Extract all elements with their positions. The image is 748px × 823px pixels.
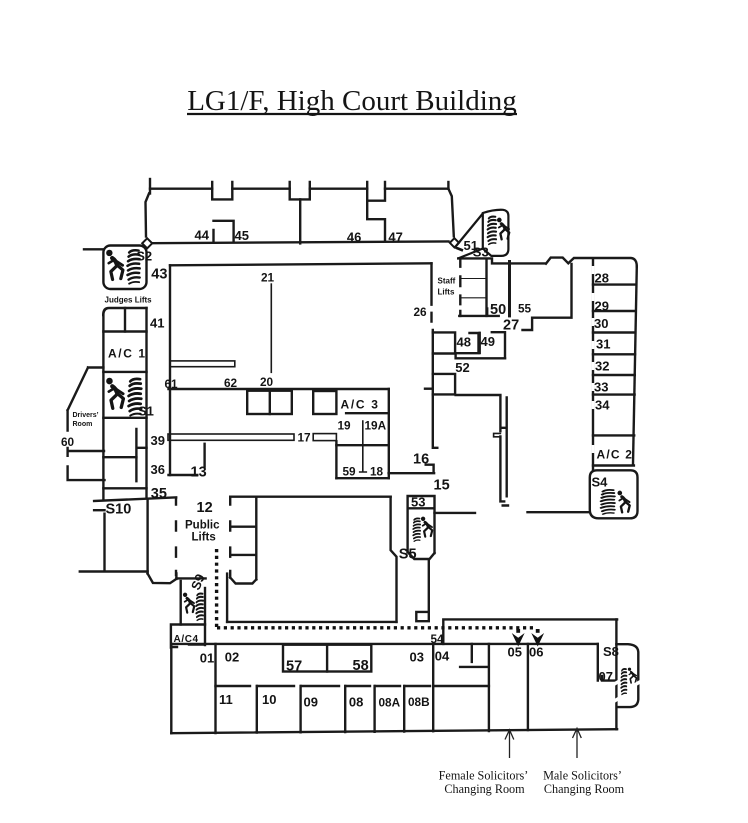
svg-text:Judges Lifts: Judges Lifts: [105, 296, 153, 305]
svg-text:11: 11: [219, 692, 233, 707]
svg-text:Lifts: Lifts: [438, 288, 455, 297]
svg-text:19: 19: [338, 419, 352, 433]
svg-text:59: 59: [343, 465, 357, 479]
svg-text:52: 52: [455, 360, 469, 375]
svg-text:08A: 08A: [379, 696, 401, 710]
svg-text:57: 57: [286, 659, 302, 675]
svg-text:S8: S8: [603, 644, 619, 659]
svg-text:04: 04: [435, 649, 450, 664]
svg-text:41: 41: [150, 315, 164, 330]
svg-text:08: 08: [349, 695, 363, 710]
svg-text:49: 49: [481, 334, 495, 349]
svg-text:17: 17: [298, 431, 312, 445]
svg-text:Female Solicitors’: Female Solicitors’: [439, 769, 529, 783]
svg-text:15: 15: [434, 478, 450, 494]
svg-text:19A: 19A: [365, 419, 387, 433]
svg-text:16: 16: [413, 452, 429, 468]
svg-text:33: 33: [594, 380, 608, 395]
svg-text:S5: S5: [399, 547, 417, 563]
svg-text:08B: 08B: [408, 695, 430, 709]
svg-text:54: 54: [431, 632, 445, 646]
svg-text:02: 02: [225, 650, 239, 665]
svg-text:28: 28: [595, 271, 609, 286]
svg-text:A/C4: A/C4: [174, 634, 199, 645]
svg-text:27: 27: [503, 318, 519, 334]
svg-text:05: 05: [508, 645, 522, 660]
svg-text:34: 34: [595, 398, 610, 413]
svg-text:09: 09: [304, 695, 318, 710]
svg-text:LG1/F, High Court Building: LG1/F, High Court Building: [187, 85, 517, 117]
svg-text:31: 31: [596, 337, 610, 352]
svg-text:26: 26: [414, 305, 428, 319]
svg-text:07: 07: [599, 669, 613, 684]
svg-text:32: 32: [595, 359, 609, 374]
svg-text:62: 62: [224, 376, 238, 390]
svg-text:S2: S2: [136, 249, 152, 264]
svg-text:06: 06: [529, 645, 543, 660]
svg-text:55: 55: [518, 302, 532, 316]
svg-text:58: 58: [353, 658, 369, 674]
svg-text:48: 48: [457, 335, 471, 350]
svg-text:Male Solicitors’: Male Solicitors’: [543, 769, 622, 783]
svg-text:43: 43: [151, 267, 167, 283]
svg-text:Drivers’: Drivers’: [73, 412, 99, 419]
svg-text:18: 18: [370, 465, 384, 479]
svg-text:35: 35: [151, 486, 167, 502]
svg-text:Staff: Staff: [438, 277, 456, 286]
svg-text:Public: Public: [185, 520, 220, 532]
svg-text:S1: S1: [138, 404, 154, 419]
svg-text:10: 10: [262, 692, 276, 707]
svg-text:Changing Room: Changing Room: [444, 782, 525, 796]
svg-text:39: 39: [151, 433, 165, 448]
svg-text:13: 13: [191, 465, 207, 481]
svg-text:53: 53: [411, 495, 425, 510]
svg-text:47: 47: [388, 229, 402, 244]
svg-text:61: 61: [165, 377, 179, 391]
svg-text:21: 21: [261, 271, 275, 285]
svg-text:01: 01: [200, 651, 214, 666]
svg-text:S3: S3: [473, 245, 489, 260]
svg-text:Lifts: Lifts: [192, 532, 216, 544]
svg-text:A/C 2: A/C 2: [597, 448, 634, 462]
svg-text:45: 45: [235, 228, 249, 243]
svg-text:Changing Room: Changing Room: [544, 782, 625, 796]
svg-text:29: 29: [595, 299, 609, 314]
svg-text:46: 46: [347, 229, 361, 244]
svg-text:30: 30: [594, 316, 608, 331]
svg-text:36: 36: [151, 462, 165, 477]
svg-text:12: 12: [197, 500, 213, 516]
svg-text:50: 50: [490, 302, 506, 318]
svg-text:03: 03: [410, 650, 424, 665]
svg-text:A/C 3: A/C 3: [341, 398, 380, 412]
svg-text:Room: Room: [73, 421, 93, 428]
svg-text:S10: S10: [106, 502, 132, 518]
svg-text:44: 44: [195, 228, 210, 243]
svg-text:20: 20: [260, 375, 274, 389]
svg-text:A/C 1: A/C 1: [108, 347, 147, 361]
svg-text:S4: S4: [592, 475, 609, 490]
svg-text:60: 60: [61, 435, 75, 449]
